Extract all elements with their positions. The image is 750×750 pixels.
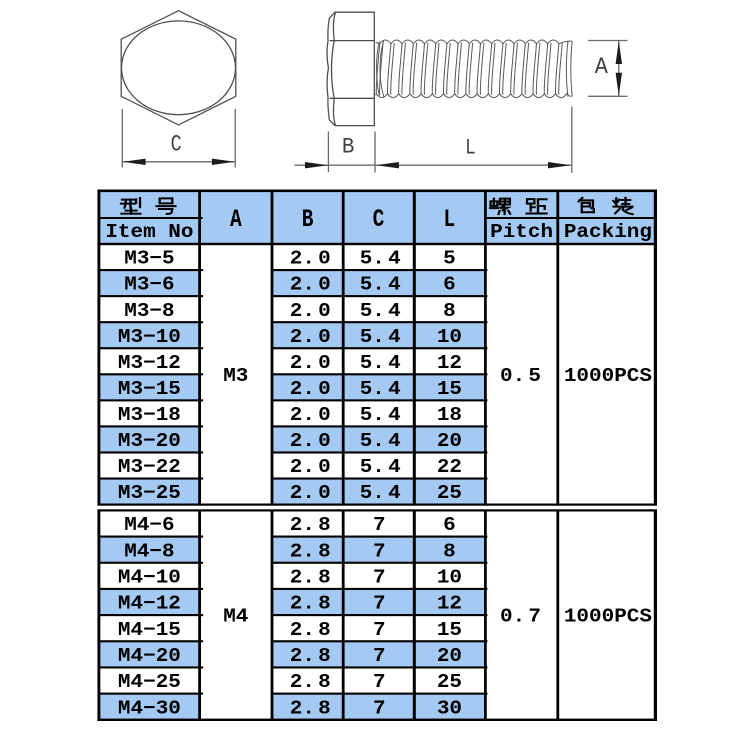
svg-text:7: 7 — [373, 541, 386, 563]
svg-text:A: A — [595, 53, 609, 80]
svg-text:8: 8 — [443, 541, 456, 563]
svg-text:5.4: 5.4 — [360, 483, 401, 505]
svg-text:C: C — [171, 133, 182, 158]
svg-text:2.0: 2.0 — [290, 248, 331, 270]
svg-text:2.0: 2.0 — [290, 327, 331, 349]
svg-text:7: 7 — [373, 672, 386, 694]
svg-text:2.8: 2.8 — [290, 646, 331, 668]
svg-text:2.8: 2.8 — [290, 515, 331, 537]
svg-text:2.8: 2.8 — [290, 567, 331, 589]
svg-text:5.4: 5.4 — [360, 457, 401, 479]
svg-text:Packing: Packing — [564, 222, 652, 244]
svg-text:12: 12 — [437, 353, 462, 375]
svg-text:7: 7 — [373, 619, 386, 641]
svg-text:2.8: 2.8 — [290, 698, 331, 720]
svg-text:8: 8 — [443, 300, 456, 322]
svg-text:A: A — [230, 205, 242, 234]
svg-text:2.8: 2.8 — [290, 619, 331, 641]
svg-text:2.0: 2.0 — [290, 274, 331, 296]
svg-text:M4−25: M4−25 — [118, 672, 181, 694]
svg-text:L: L — [465, 135, 476, 160]
svg-text:M4−10: M4−10 — [118, 567, 181, 589]
svg-text:M3−5: M3−5 — [124, 248, 174, 270]
svg-text:2.0: 2.0 — [290, 405, 331, 427]
svg-text:5: 5 — [443, 248, 456, 270]
svg-text:M3−10: M3−10 — [118, 327, 181, 349]
svg-text:6: 6 — [443, 274, 456, 296]
svg-text:30: 30 — [437, 698, 462, 720]
svg-text:18: 18 — [437, 405, 462, 427]
svg-text:1000PCS: 1000PCS — [564, 366, 652, 388]
svg-text:M3−12: M3−12 — [118, 353, 181, 375]
svg-text:Pitch: Pitch — [490, 222, 553, 244]
svg-text:5.4: 5.4 — [360, 248, 401, 270]
svg-text:20: 20 — [437, 431, 462, 453]
svg-text:10: 10 — [437, 567, 462, 589]
svg-text:2.0: 2.0 — [290, 379, 331, 401]
svg-text:M4−8: M4−8 — [124, 541, 174, 563]
svg-text:15: 15 — [437, 379, 462, 401]
svg-text:M4−30: M4−30 — [118, 698, 181, 720]
svg-text:M4−6: M4−6 — [124, 515, 174, 537]
svg-text:5.4: 5.4 — [360, 353, 401, 375]
svg-text:7: 7 — [373, 593, 386, 615]
svg-text:M3−18: M3−18 — [118, 405, 181, 427]
svg-text:M4−20: M4−20 — [118, 646, 181, 668]
svg-text:5.4: 5.4 — [360, 379, 401, 401]
svg-text:B: B — [302, 205, 314, 234]
svg-text:7: 7 — [373, 567, 386, 589]
svg-text:M3−8: M3−8 — [124, 300, 174, 322]
svg-text:2.8: 2.8 — [290, 672, 331, 694]
svg-text:B: B — [342, 135, 355, 160]
svg-text:L: L — [444, 205, 456, 234]
svg-text:2.0: 2.0 — [290, 483, 331, 505]
svg-text:2.0: 2.0 — [290, 431, 331, 453]
svg-text:M3−25: M3−25 — [118, 483, 181, 505]
svg-text:7: 7 — [373, 646, 386, 668]
svg-text:M4−15: M4−15 — [118, 619, 181, 641]
svg-text:5.4: 5.4 — [360, 327, 401, 349]
svg-text:20: 20 — [437, 646, 462, 668]
svg-text:M4: M4 — [223, 606, 248, 628]
svg-text:0.7: 0.7 — [500, 606, 541, 628]
svg-text:2.0: 2.0 — [290, 457, 331, 479]
svg-text:M3−6: M3−6 — [124, 274, 174, 296]
svg-text:5.4: 5.4 — [360, 405, 401, 427]
svg-text:2.0: 2.0 — [290, 300, 331, 322]
svg-text:5.4: 5.4 — [360, 274, 401, 296]
svg-text:2.0: 2.0 — [290, 353, 331, 375]
svg-text:7: 7 — [373, 515, 386, 537]
svg-text:C: C — [373, 205, 385, 234]
svg-text:M3−15: M3−15 — [118, 379, 181, 401]
svg-text:5.4: 5.4 — [360, 300, 401, 322]
svg-text:10: 10 — [437, 327, 462, 349]
svg-text:M3−22: M3−22 — [118, 457, 181, 479]
svg-text:0.5: 0.5 — [500, 366, 541, 388]
svg-text:6: 6 — [443, 515, 456, 537]
svg-text:M3: M3 — [223, 366, 248, 388]
svg-text:M3−20: M3−20 — [118, 431, 181, 453]
svg-text:2.8: 2.8 — [290, 593, 331, 615]
svg-text:25: 25 — [437, 672, 462, 694]
svg-text:1000PCS: 1000PCS — [564, 606, 652, 628]
svg-text:25: 25 — [437, 483, 462, 505]
svg-text:2.8: 2.8 — [290, 541, 331, 563]
svg-text:Item No: Item No — [105, 222, 193, 244]
svg-text:15: 15 — [437, 619, 462, 641]
svg-text:M4−12: M4−12 — [118, 593, 181, 615]
svg-text:5.4: 5.4 — [360, 431, 401, 453]
svg-text:7: 7 — [373, 698, 386, 720]
svg-text:12: 12 — [437, 593, 462, 615]
svg-text:22: 22 — [437, 457, 462, 479]
